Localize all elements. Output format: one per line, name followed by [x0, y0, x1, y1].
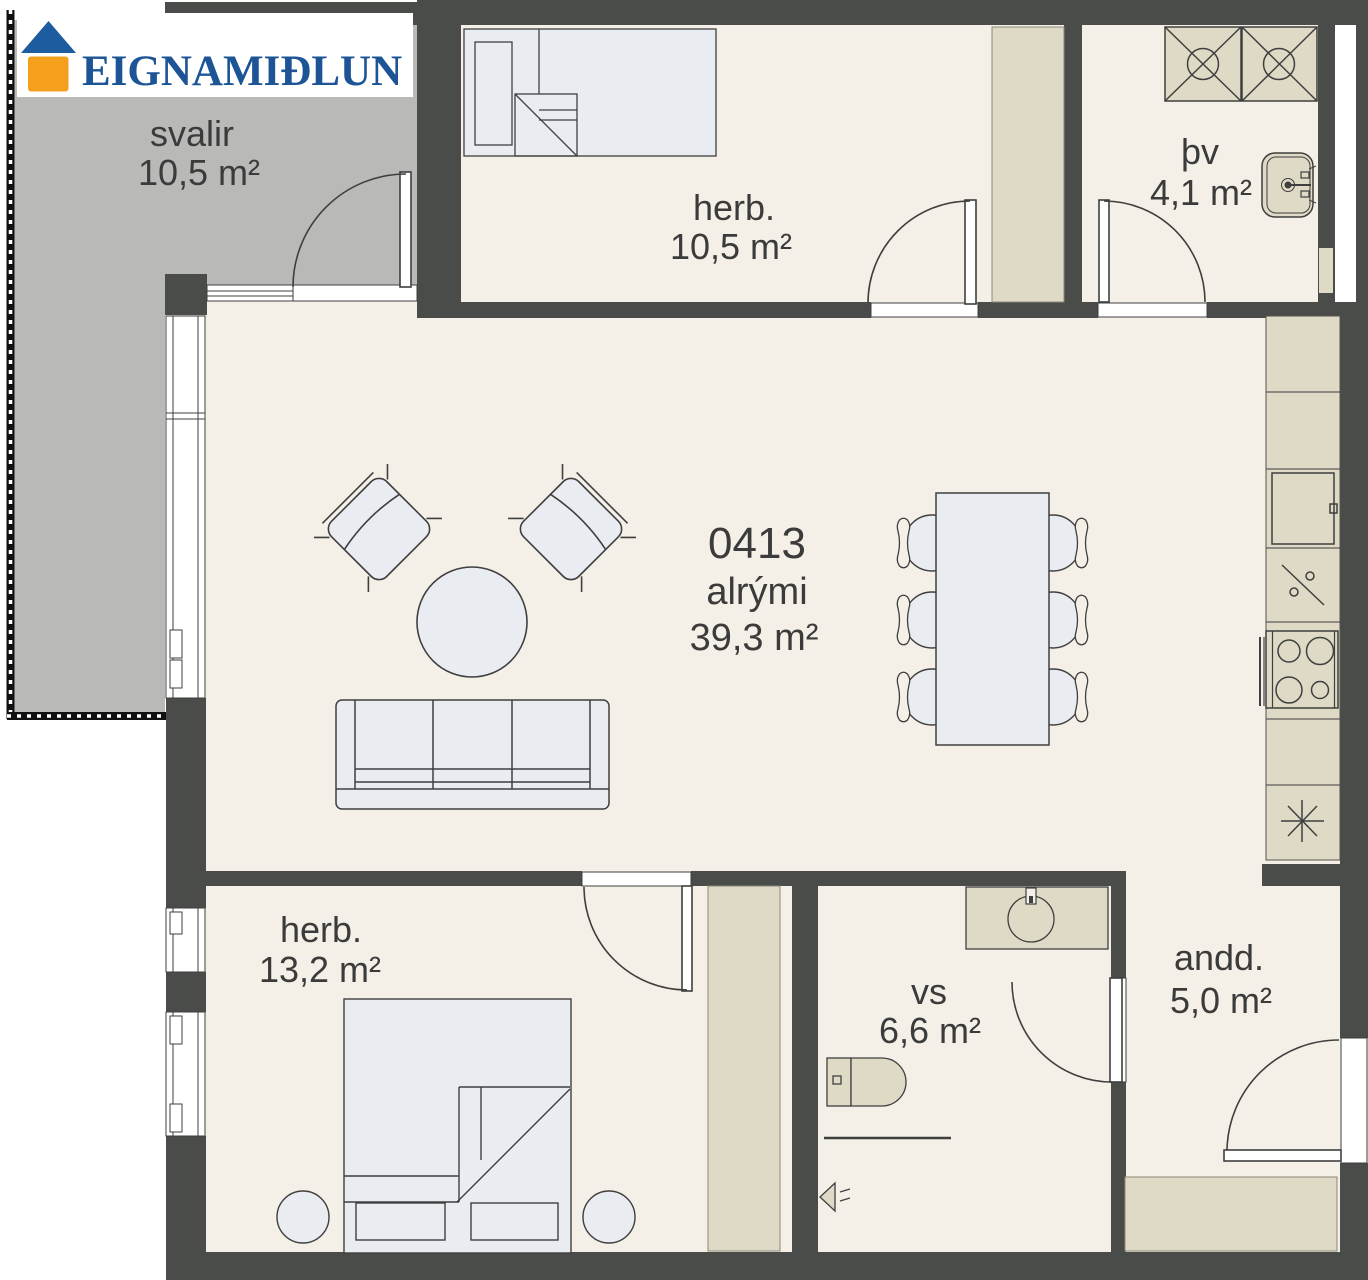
svg-text:10,5 m²: 10,5 m²: [138, 152, 260, 193]
svg-text:6,6 m²: 6,6 m²: [879, 1010, 981, 1051]
svg-text:10,5 m²: 10,5 m²: [670, 226, 792, 267]
svg-text:herb.: herb.: [693, 187, 775, 228]
svg-text:vs: vs: [911, 971, 947, 1012]
svg-text:0413: 0413: [708, 519, 806, 568]
svg-text:svalir: svalir: [150, 113, 234, 154]
svg-text:13,2 m²: 13,2 m²: [259, 949, 381, 990]
svg-text:39,3 m²: 39,3 m²: [690, 617, 819, 659]
svg-text:herb.: herb.: [280, 909, 362, 950]
svg-text:andd.: andd.: [1174, 937, 1264, 978]
svg-text:EIGNAMIÐLUN: EIGNAMIÐLUN: [82, 48, 402, 95]
svg-text:4,1 m²: 4,1 m²: [1150, 172, 1252, 213]
svg-text:þv: þv: [1181, 131, 1219, 172]
svg-text:5,0 m²: 5,0 m²: [1170, 980, 1272, 1021]
svg-text:alrými: alrými: [706, 571, 807, 613]
